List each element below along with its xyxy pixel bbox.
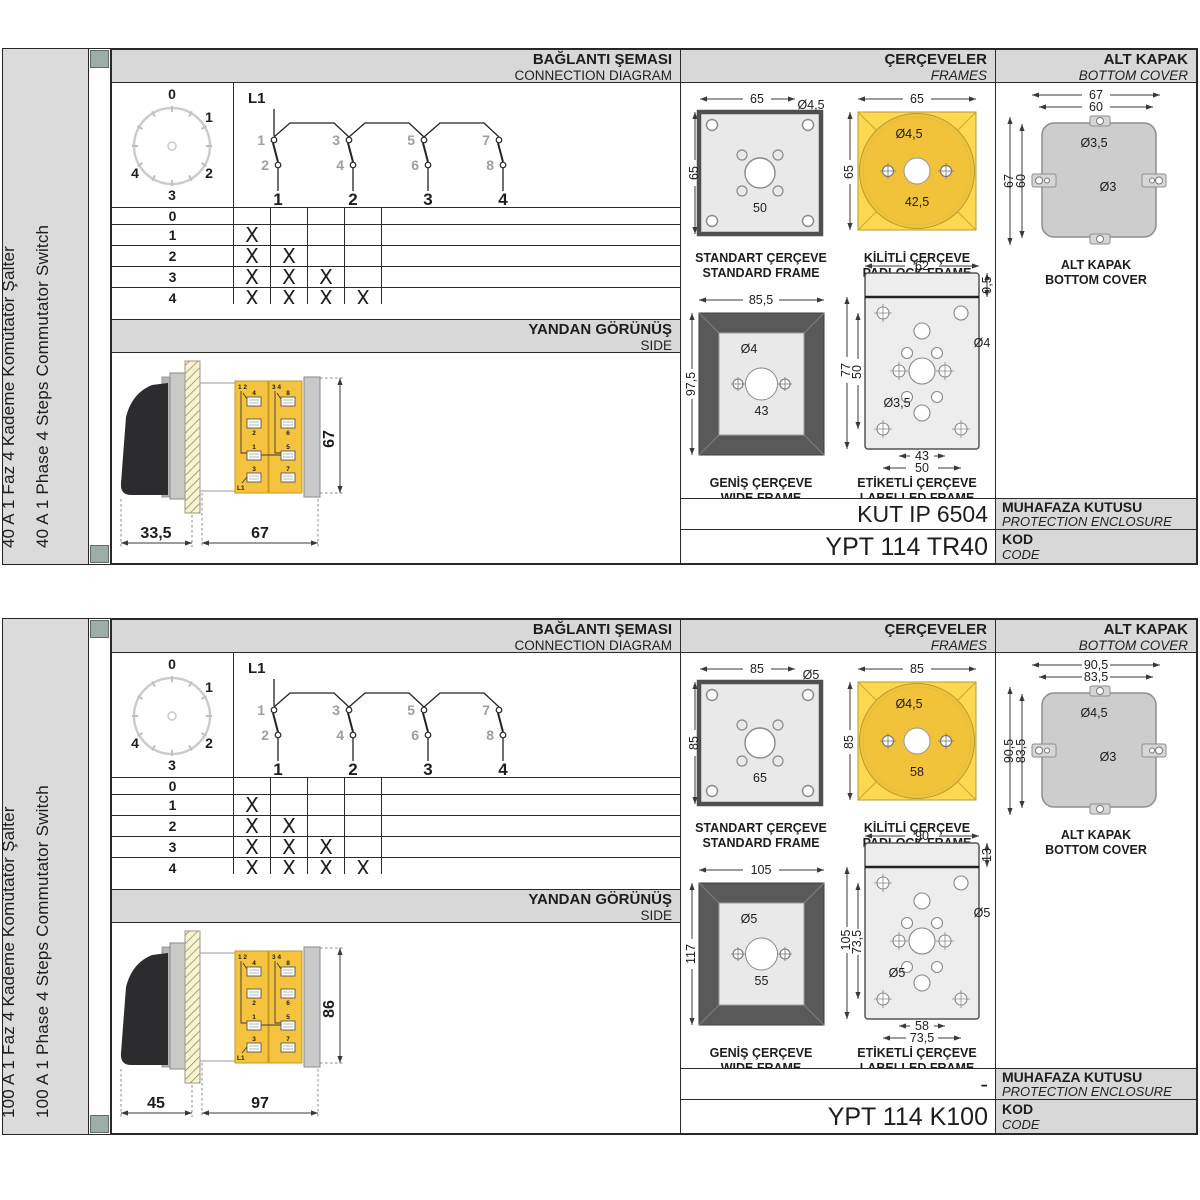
caption-en: BOTTOM COVER — [1045, 843, 1147, 857]
caption-tr: ALT KAPAK — [1061, 828, 1131, 842]
header-tr: BAĞLANTI ŞEMASI — [112, 622, 672, 639]
header-tr: YANDAN GÖRÜNÜŞ — [112, 892, 672, 909]
header-tr: BAĞLANTI ŞEMASI — [112, 52, 672, 69]
mark-cell — [345, 778, 382, 794]
side-view-svg: 1 2 4 2 1 3 L1 3 4 8 6 5 7 — [112, 923, 680, 1135]
filler-cell — [382, 837, 680, 857]
mark-cell: X — [234, 795, 271, 815]
mark-cell — [345, 837, 382, 857]
module1-t3: 1 — [252, 444, 256, 451]
label-tr: MUHAFAZA KUTUSU — [1002, 1070, 1196, 1085]
wide-frame-svg: 105 117 Ø5 55 — [685, 859, 837, 1045]
dial-svg: 0 1 2 3 4 — [112, 653, 233, 777]
dim-hole: Ø4,5 — [797, 98, 824, 112]
caption-en: BOTTOM COVER — [1045, 273, 1147, 287]
catalog-page: 40 A 1 Faz 4 Kademe Komütatör Şalter 40 … — [0, 0, 1200, 1200]
connection-diagram-header: BAĞLANTI ŞEMASI CONNECTION DIAGRAM — [111, 49, 681, 83]
dial-pos-3: 3 — [168, 187, 176, 203]
module1-t1: 4 — [252, 960, 256, 967]
mark-cell — [271, 208, 308, 224]
mark-cell — [308, 778, 345, 794]
position-label: 0 — [112, 208, 234, 224]
position-label: 3 — [112, 837, 234, 857]
mark-cell — [271, 778, 308, 794]
module2-t2: 6 — [286, 1000, 290, 1007]
dim-hole-mid: Ø4 — [974, 336, 991, 350]
dim-width: 90 — [915, 829, 929, 843]
filler-cell — [382, 208, 680, 224]
product-code-value: YPT 114 K100 — [680, 1099, 996, 1134]
side-title-column: 100 A 1 Faz 4 Kademe Komütatör Şalter 10… — [3, 619, 89, 1134]
contact-7: 7 — [482, 702, 490, 718]
wide-frame-svg: 85,5 97,5 Ø4 43 — [685, 289, 837, 475]
switching-table: 0 1 X 2 X X — [111, 777, 681, 875]
dial-pos-1: 1 — [205, 679, 213, 695]
table-row: 2 X X — [112, 816, 680, 837]
contact-3: 3 — [332, 132, 340, 148]
caption-tr: GENİŞ ÇERÇEVE — [710, 476, 813, 490]
table-row: 1 X — [112, 795, 680, 816]
module1-source: L1 — [237, 485, 245, 492]
module1-t1: 4 — [252, 390, 256, 397]
dim-inner: 55 — [755, 974, 769, 988]
dim-inner-height: 60 — [1014, 174, 1028, 188]
mark-cell — [308, 816, 345, 836]
dim-body-depth: 67 — [251, 525, 269, 542]
pole-3: 3 — [423, 760, 432, 777]
bottom-cover-area: 90,5 83,5 90,5 83,5 Ø4,5 Ø3 ALT KAPAK BO… — [995, 652, 1197, 1069]
mark-cell: X — [234, 837, 271, 857]
dial-pos-2: 2 — [205, 735, 213, 751]
position-label: 3 — [112, 267, 234, 287]
side-view-header: YANDAN GÖRÜNÜŞ SIDE — [111, 319, 681, 353]
bottom-cover-area: 67 60 67 60 Ø3,5 Ø3 ALT KAPAK BOTTOM COV… — [995, 82, 1197, 499]
header-tr: ALT KAPAK — [996, 622, 1188, 639]
dim-width: 85 — [750, 662, 764, 676]
dim-body-height: 67 — [321, 430, 338, 448]
caption-tr: ALT KAPAK — [1061, 258, 1131, 272]
product-title-turkish: 100 A 1 Faz 4 Kademe Komütatör Şalter — [0, 806, 19, 1118]
mark-cell — [234, 778, 271, 794]
code-label: KOD CODE — [995, 529, 1197, 564]
dim-width: 85 — [910, 662, 924, 676]
position-label: 0 — [112, 778, 234, 794]
mark-cell: X — [271, 246, 308, 266]
dial-pos-4: 4 — [131, 735, 139, 751]
dial-pos-1: 1 — [205, 109, 213, 125]
label-en: PROTECTION ENCLOSURE — [1002, 515, 1196, 529]
filler-cell — [382, 246, 680, 266]
mark-cell — [308, 795, 345, 815]
mark-cell: X — [308, 837, 345, 857]
dim-height: 65 — [842, 165, 856, 179]
table-row: 3 X X X — [112, 837, 680, 858]
mark-cell — [345, 208, 382, 224]
dim-inner: 43 — [755, 404, 769, 418]
enclosure-label: MUHAFAZA KUTUSU PROTECTION ENCLOSURE — [995, 1068, 1197, 1100]
dim-body-height: 86 — [321, 1000, 338, 1018]
enclosure-code-value: KUT IP 6504 — [680, 498, 996, 530]
standard-frame-svg: 65 Ø4,5 65 50 — [685, 88, 837, 250]
pole-1: 1 — [273, 190, 282, 207]
dim-inner: 50 — [753, 201, 767, 215]
dim-inner-height: 73,5 — [850, 930, 864, 954]
padlock-frame: 85 85 Ø4,5 58 KİLİTLİ ÇERÇEVE PADLOCK FR… — [839, 658, 995, 851]
mark-cell: X — [234, 267, 271, 287]
standard-frame-svg: 85 Ø5 85 65 — [685, 658, 837, 820]
contact-schematic-drawing: L1 1 3 5 — [233, 82, 681, 208]
mark-cell: X — [308, 267, 345, 287]
rotary-dial-drawing: 0 1 2 3 4 — [111, 82, 234, 208]
module2-t1: 8 — [286, 960, 290, 967]
mark-cell — [345, 246, 382, 266]
bottom-cover-svg: 90,5 83,5 90,5 83,5 Ø4,5 Ø3 — [996, 657, 1196, 827]
header-tr: ÇERÇEVELER — [681, 52, 987, 69]
position-label: 1 — [112, 795, 234, 815]
module2-t2: 6 — [286, 430, 290, 437]
spacer-row — [111, 304, 681, 320]
switching-table: 0 1 X 2 X X — [111, 207, 681, 305]
product-panel: 100 A 1 Faz 4 Kademe Komütatör Şalter 10… — [2, 618, 1198, 1135]
dim-strip: 13 — [980, 848, 994, 862]
dim-width: 65 — [750, 92, 764, 106]
caption-tr: ETİKETLİ ÇERÇEVE — [857, 476, 976, 490]
dim-hole: Ø4 — [741, 342, 758, 356]
caption-en: STANDARD FRAME — [702, 266, 819, 280]
mark-cell — [308, 246, 345, 266]
corner-tab — [90, 1115, 109, 1133]
switch-handle — [121, 953, 168, 1065]
dial-pos-0: 0 — [168, 656, 176, 672]
mark-cell — [308, 225, 345, 245]
wide-frame: 105 117 Ø5 55 GENİŞ ÇERÇEVE WIDE FRAME — [683, 859, 839, 1076]
contact-2: 2 — [261, 157, 269, 173]
side-view-drawing: 1 2 4 2 1 3 L1 3 4 8 6 5 7 — [111, 352, 681, 564]
table-row: 1 X — [112, 225, 680, 246]
contact-6: 6 — [411, 727, 419, 743]
dim-hole-big: Ø3,5 — [1080, 136, 1107, 150]
dim-outer-width: 73,5 — [910, 1031, 934, 1045]
bottom-cover-svg: 67 60 67 60 Ø3,5 Ø3 — [996, 87, 1196, 257]
dim-hole-corner: Ø3,5 — [883, 396, 910, 410]
frames-area: 85 Ø5 85 65 STANDART ÇERÇEVE STANDARD FR… — [680, 652, 996, 1069]
side-view-drawing: 1 2 4 2 1 3 L1 3 4 8 6 5 7 — [111, 922, 681, 1134]
header-tr: YANDAN GÖRÜNÜŞ — [112, 322, 672, 339]
dim-inner-height: 83,5 — [1014, 739, 1028, 763]
dim-hole-corner: Ø5 — [889, 966, 906, 980]
table-row: 2 X X — [112, 246, 680, 267]
pole-2: 2 — [348, 190, 357, 207]
dim-height: 97,5 — [685, 372, 698, 396]
caption-tr: STANDART ÇERÇEVE — [695, 251, 827, 265]
binding-strip — [89, 49, 111, 564]
frame-caption: STANDART ÇERÇEVE STANDARD FRAME — [683, 251, 839, 281]
dim-inner-width: 60 — [1089, 100, 1103, 114]
contact-1: 1 — [257, 702, 265, 718]
label-en: CODE — [1002, 548, 1196, 563]
dim-inner: 42,5 — [905, 195, 929, 209]
dim-height: 117 — [685, 944, 698, 964]
standard-frame: 65 Ø4,5 65 50 STANDART ÇERÇEVE STANDARD … — [683, 88, 839, 281]
dim-handle-depth: 45 — [147, 1095, 165, 1112]
module1-corner-label: 1 2 — [238, 954, 247, 961]
dim-inner: 65 — [753, 771, 767, 785]
module1-t2: 2 — [252, 1000, 256, 1007]
dim-height: 85 — [687, 736, 701, 750]
cover-caption: ALT KAPAK BOTTOM COVER — [996, 828, 1196, 858]
dim-hole: Ø4,5 — [895, 127, 922, 141]
mark-cell: X — [271, 267, 308, 287]
caption-tr: GENİŞ ÇERÇEVE — [710, 1046, 813, 1060]
enclosure-label: MUHAFAZA KUTUSU PROTECTION ENCLOSURE — [995, 498, 1197, 530]
label-en: PROTECTION ENCLOSURE — [1002, 1085, 1196, 1099]
side-view-header: YANDAN GÖRÜNÜŞ SIDE — [111, 889, 681, 923]
switch-handle — [121, 383, 168, 495]
table-row: 0 — [112, 208, 680, 225]
dim-width: 105 — [751, 863, 772, 877]
module2-t3: 5 — [286, 1014, 290, 1021]
module1-t3: 1 — [252, 1014, 256, 1021]
padlock-frame: 65 65 Ø4,5 42,5 KİLİTLİ ÇERÇEVE PADLOCK … — [839, 88, 995, 281]
dim-height: 85 — [842, 735, 856, 749]
panel-main: BAĞLANTI ŞEMASI CONNECTION DIAGRAM 0 1 2… — [111, 619, 1197, 1134]
side-view-svg: 1 2 4 2 1 3 L1 3 4 8 6 5 7 — [112, 353, 680, 565]
frame-caption: STANDART ÇERÇEVE STANDARD FRAME — [683, 821, 839, 851]
product-code-value: YPT 114 TR40 — [680, 529, 996, 564]
standard-frame: 85 Ø5 85 65 STANDART ÇERÇEVE STANDARD FR… — [683, 658, 839, 851]
dim-width: 62 — [915, 259, 929, 273]
dial-pos-3: 3 — [168, 757, 176, 773]
dim-hole: Ø5 — [741, 912, 758, 926]
schematic-source-label: L1 — [248, 660, 266, 677]
padlock-frame-svg: 85 85 Ø4,5 58 — [841, 658, 993, 820]
dial-pos-0: 0 — [168, 86, 176, 102]
rotary-dial-drawing: 0 1 2 3 4 — [111, 652, 234, 778]
contact-8: 8 — [486, 727, 494, 743]
labelled-frame-svg: 90 13 105 73,5 Ø5 Ø5 58 73,5 — [839, 827, 995, 1045]
module1-t4: 3 — [252, 466, 256, 473]
position-label: 2 — [112, 816, 234, 836]
spacer-row — [111, 874, 681, 890]
dim-body-depth: 97 — [251, 1095, 269, 1112]
header-tr: ALT KAPAK — [996, 52, 1188, 69]
dim-width: 65 — [910, 92, 924, 106]
contact-6: 6 — [411, 157, 419, 173]
module1-corner-label: 1 2 — [238, 384, 247, 391]
label-tr: MUHAFAZA KUTUSU — [1002, 500, 1196, 515]
mark-cell — [345, 795, 382, 815]
mark-cell: X — [271, 816, 308, 836]
position-label: 2 — [112, 246, 234, 266]
table-row: 3 X X X — [112, 267, 680, 288]
panel-main: BAĞLANTI ŞEMASI CONNECTION DIAGRAM 0 1 2… — [111, 49, 1197, 564]
module2-t4: 7 — [286, 1036, 290, 1043]
header-tr: ÇERÇEVELER — [681, 622, 987, 639]
mark-cell — [234, 208, 271, 224]
module2-t3: 5 — [286, 444, 290, 451]
labelled-frame: 90 13 105 73,5 Ø5 Ø5 58 73,5 ETİKETLİ ÇE… — [839, 827, 995, 1076]
contact-8: 8 — [486, 157, 494, 173]
dim-height: 65 — [687, 166, 701, 180]
pole-2: 2 — [348, 760, 357, 777]
module2-t4: 7 — [286, 466, 290, 473]
contact-5: 5 — [407, 132, 415, 148]
padlock-frame-svg: 65 65 Ø4,5 42,5 — [841, 88, 993, 250]
table-row: 0 — [112, 778, 680, 795]
corner-tab — [90, 620, 109, 638]
dim-hole: Ø5 — [803, 668, 820, 682]
contact-2: 2 — [261, 727, 269, 743]
contact-7: 7 — [482, 132, 490, 148]
label-en: CODE — [1002, 1118, 1196, 1133]
mark-cell — [308, 208, 345, 224]
mark-cell — [345, 816, 382, 836]
frames-area: 65 Ø4,5 65 50 STANDART ÇERÇEVE STANDARD … — [680, 82, 996, 499]
product-title-turkish: 40 A 1 Faz 4 Kademe Komütatör Şalter — [0, 246, 19, 548]
dial-pos-2: 2 — [205, 165, 213, 181]
dim-hole-small: Ø3 — [1100, 180, 1117, 194]
product-title-english: 40 A 1 Phase 4 Steps Commutator Switch — [33, 225, 53, 548]
mark-cell: X — [234, 246, 271, 266]
frames-header: ÇERÇEVELER FRAMES — [680, 619, 996, 653]
dim-inner-height: 50 — [850, 365, 864, 379]
wide-frame: 85,5 97,5 Ø4 43 GENİŞ ÇERÇEVE WIDE FRAME — [683, 289, 839, 506]
mark-cell: X — [234, 816, 271, 836]
connection-diagram-header: BAĞLANTI ŞEMASI CONNECTION DIAGRAM — [111, 619, 681, 653]
contact-schematic-drawing: L1 1 3 5 — [233, 652, 681, 778]
schematic-svg: L1 1 3 5 — [234, 653, 680, 777]
frames-header: ÇERÇEVELER FRAMES — [680, 49, 996, 83]
contact-4: 4 — [336, 727, 344, 743]
schematic-svg: L1 1 3 5 — [234, 83, 680, 207]
pole-1: 1 — [273, 760, 282, 777]
filler-cell — [382, 795, 680, 815]
mark-cell — [345, 225, 382, 245]
mark-cell: X — [234, 225, 271, 245]
schematic-source-label: L1 — [248, 90, 266, 107]
dim-hole-small: Ø3 — [1100, 750, 1117, 764]
product-title-english: 100 A 1 Phase 4 Steps Commutator Switch — [33, 785, 53, 1118]
side-title-column: 40 A 1 Faz 4 Kademe Komütatör Şalter 40 … — [3, 49, 89, 564]
corner-tab — [90, 50, 109, 68]
module1-t4: 3 — [252, 1036, 256, 1043]
pole-3: 3 — [423, 190, 432, 207]
mark-cell — [271, 795, 308, 815]
module1-t2: 2 — [252, 430, 256, 437]
contact-4: 4 — [336, 157, 344, 173]
dim-handle-depth: 33,5 — [140, 525, 171, 542]
module2-t1: 8 — [286, 390, 290, 397]
filler-cell — [382, 267, 680, 287]
dim-inner-width: 83,5 — [1084, 670, 1108, 684]
dim-outer-width: 50 — [915, 461, 929, 475]
dim-hole-big: Ø4,5 — [1080, 706, 1107, 720]
caption-tr: STANDART ÇERÇEVE — [695, 821, 827, 835]
contact-1: 1 — [257, 132, 265, 148]
binding-strip — [89, 619, 111, 1134]
dim-hole-mid: Ø5 — [974, 906, 991, 920]
mark-cell: X — [271, 837, 308, 857]
bottom-cover-header: ALT KAPAK BOTTOM COVER — [995, 49, 1197, 83]
dim-hole: Ø4,5 — [895, 697, 922, 711]
module1-source: L1 — [237, 1055, 245, 1062]
module2-corner-label: 3 4 — [272, 384, 281, 391]
contact-5: 5 — [407, 702, 415, 718]
dim-inner: 58 — [910, 765, 924, 779]
labelled-frame-svg: 62 9,5 77 50 Ø4 Ø3,5 43 50 — [839, 257, 995, 475]
filler-cell — [382, 816, 680, 836]
dim-width: 85,5 — [749, 293, 773, 307]
code-label: KOD CODE — [995, 1099, 1197, 1134]
filler-cell — [382, 778, 680, 794]
mark-cell — [271, 225, 308, 245]
dial-pos-4: 4 — [131, 165, 139, 181]
module2-corner-label: 3 4 — [272, 954, 281, 961]
dial-svg: 0 1 2 3 4 — [112, 83, 233, 207]
label-tr: KOD — [1002, 1102, 1196, 1118]
caption-tr: ETİKETLİ ÇERÇEVE — [857, 1046, 976, 1060]
caption-en: STANDARD FRAME — [702, 836, 819, 850]
enclosure-code-value: - — [680, 1068, 996, 1100]
pole-4: 4 — [498, 760, 508, 777]
contact-3: 3 — [332, 702, 340, 718]
label-tr: KOD — [1002, 532, 1196, 548]
filler-cell — [382, 225, 680, 245]
product-panel: 40 A 1 Faz 4 Kademe Komütatör Şalter 40 … — [2, 48, 1198, 565]
cover-caption: ALT KAPAK BOTTOM COVER — [996, 258, 1196, 288]
pole-4: 4 — [498, 190, 508, 207]
dim-strip: 9,5 — [980, 276, 994, 293]
mark-cell — [345, 267, 382, 287]
labelled-frame: 62 9,5 77 50 Ø4 Ø3,5 43 50 ETİKETLİ ÇERÇ… — [839, 257, 995, 506]
corner-tab — [90, 545, 109, 563]
position-label: 1 — [112, 225, 234, 245]
bottom-cover-header: ALT KAPAK BOTTOM COVER — [995, 619, 1197, 653]
